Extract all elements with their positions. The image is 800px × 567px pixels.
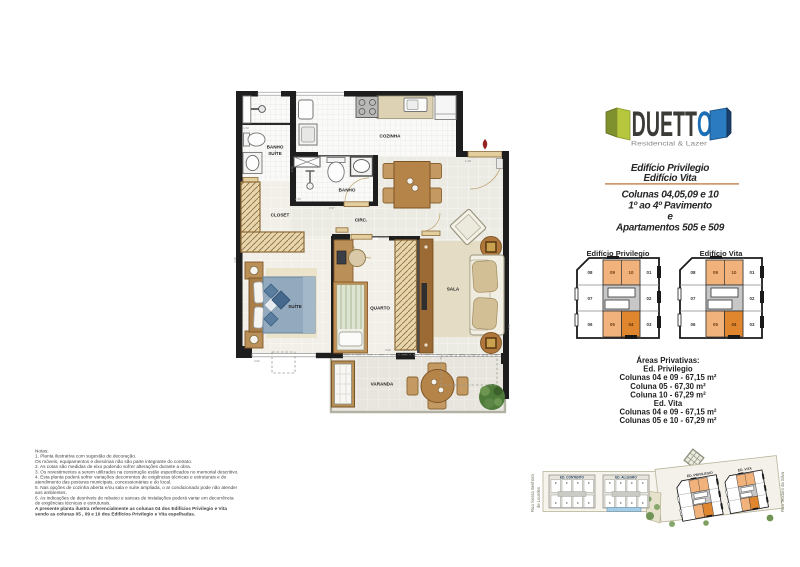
svg-text:1.52: 1.52 <box>243 126 249 130</box>
svg-text:sendo as colunas 05 , 09 e 10: sendo as colunas 05 , 09 e 10 dos Edifíc… <box>35 511 195 516</box>
svg-text:1º ao 4º Pavimento: 1º ao 4º Pavimento <box>628 201 712 212</box>
svg-text:9.10: 9.10 <box>290 166 294 172</box>
svg-text:Rua Teodoro da Silva: Rua Teodoro da Silva <box>780 471 785 512</box>
svg-text:ED. ALLEGRO: ED. ALLEGRO <box>615 476 637 480</box>
svg-text:Colunas 04,05,09 e 10: Colunas 04,05,09 e 10 <box>621 190 719 201</box>
svg-text:CLOSET: CLOSET <box>271 213 290 218</box>
svg-text:QUARTO: QUARTO <box>370 306 390 311</box>
svg-text:Rua Nossa Senhora: Rua Nossa Senhora <box>530 474 535 512</box>
svg-text:DUETTO: DUETTO <box>632 105 713 144</box>
svg-text:2.62: 2.62 <box>254 359 260 363</box>
svg-text:VARANDA: VARANDA <box>371 382 394 387</box>
svg-text:BANHO: BANHO <box>267 145 284 150</box>
svg-text:e: e <box>667 212 673 223</box>
svg-text:SALA: SALA <box>447 287 460 292</box>
svg-text:1.50: 1.50 <box>507 324 511 330</box>
svg-text:2.42: 2.42 <box>404 348 410 352</box>
svg-text:Edifício Vita: Edifício Vita <box>644 173 698 184</box>
svg-text:1.48: 1.48 <box>465 159 471 163</box>
svg-text:SUÍTE: SUÍTE <box>268 149 282 156</box>
svg-text:4.40: 4.40 <box>233 257 237 263</box>
svg-text:0.90: 0.90 <box>385 348 391 352</box>
svg-text:de Lourdes: de Lourdes <box>536 487 541 508</box>
svg-text:2.97: 2.97 <box>329 206 335 210</box>
svg-text:SUÍTE: SUÍTE <box>288 302 302 309</box>
svg-text:Residencial & Lazer: Residencial & Lazer <box>631 141 708 148</box>
svg-text:Colunas 05 e 10 - 67,29 m²: Colunas 05 e 10 - 67,29 m² <box>619 416 716 425</box>
svg-text:BANHO: BANHO <box>339 188 356 193</box>
svg-text:Apartamentos 505 e 509: Apartamentos 505 e 509 <box>615 223 725 234</box>
svg-text:ED. CONTENTO: ED. CONTENTO <box>560 476 585 480</box>
svg-text:de exigências técnicas e estru: de exigências técnicas e estruturais. <box>35 501 111 506</box>
svg-text:CIRC.: CIRC. <box>355 218 368 223</box>
svg-text:COZINHA: COZINHA <box>380 134 402 139</box>
svg-text:2.45: 2.45 <box>295 197 301 201</box>
